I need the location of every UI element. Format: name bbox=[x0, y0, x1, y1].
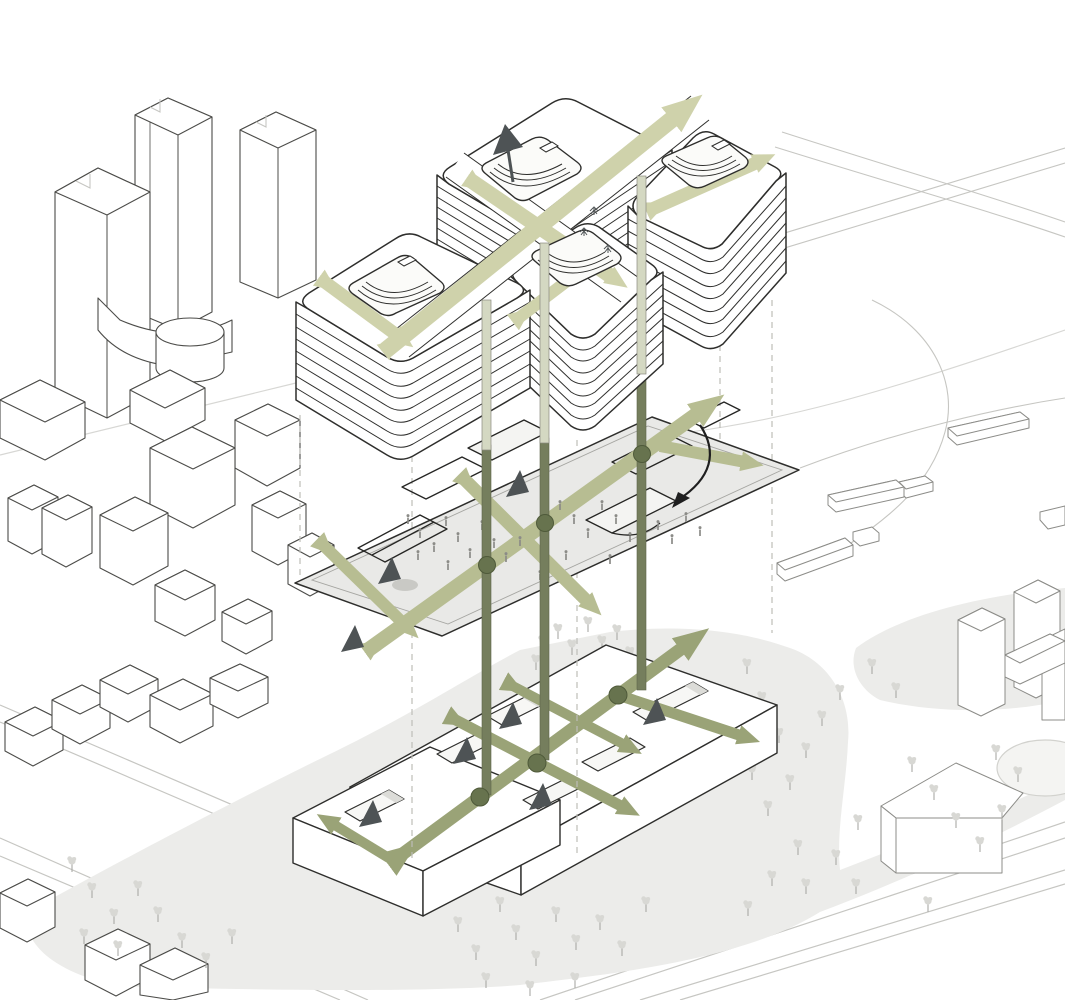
context-buildings-midleft bbox=[0, 370, 334, 654]
tower-block bbox=[55, 168, 150, 418]
tower-block bbox=[240, 112, 316, 298]
context-bars-right bbox=[777, 412, 1065, 581]
context-buildings-topleft bbox=[55, 98, 316, 418]
tower-mass bbox=[296, 96, 786, 459]
axonometric-circulation-diagram bbox=[0, 0, 1065, 1000]
diagram-canvas bbox=[0, 0, 1065, 1000]
